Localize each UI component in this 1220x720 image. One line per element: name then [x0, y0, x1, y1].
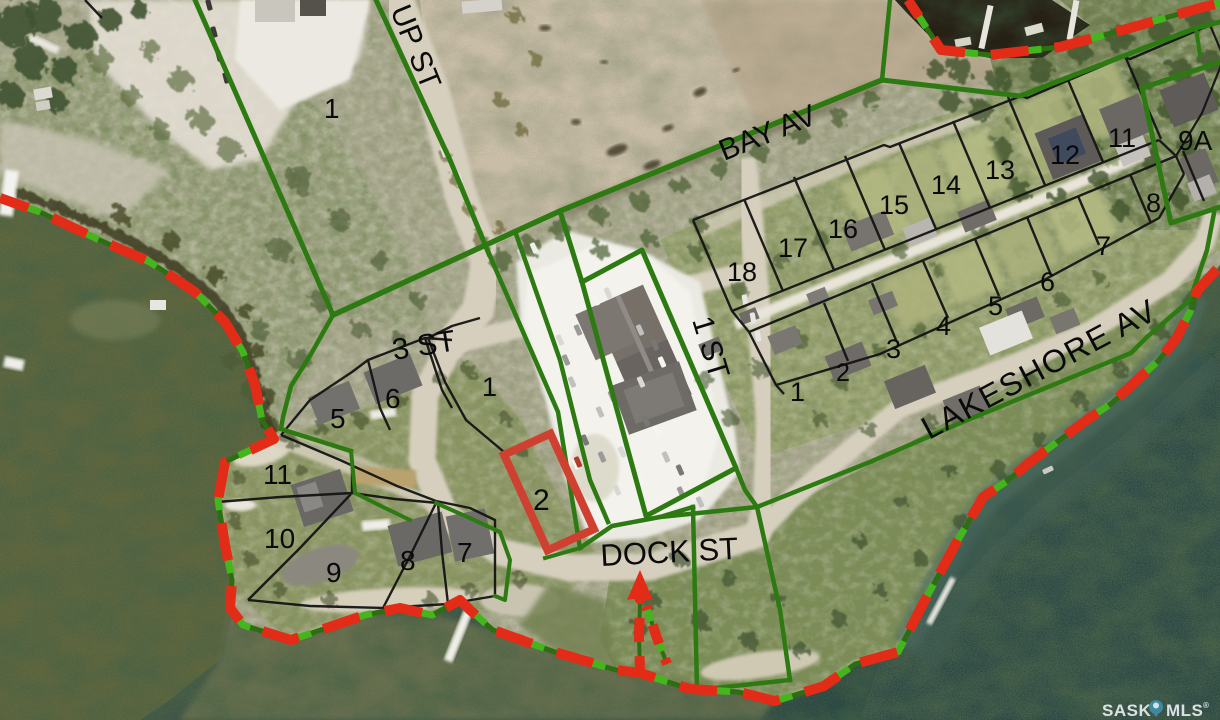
svg-text:12: 12 [1050, 140, 1080, 170]
svg-text:14: 14 [931, 170, 961, 200]
svg-text:8: 8 [1146, 188, 1161, 218]
svg-text:6: 6 [385, 383, 401, 414]
svg-text:11: 11 [263, 459, 292, 490]
svg-text:SASK: SASK [1102, 701, 1151, 720]
svg-text:17: 17 [778, 233, 808, 263]
svg-text:9: 9 [326, 557, 342, 588]
svg-text:7: 7 [1096, 231, 1111, 261]
svg-text:6: 6 [1040, 267, 1055, 297]
svg-text:9A: 9A [1178, 125, 1213, 156]
svg-text:18: 18 [727, 257, 757, 287]
svg-text:DOCK ST: DOCK ST [600, 531, 739, 573]
svg-text:10: 10 [264, 523, 295, 554]
svg-text:13: 13 [985, 155, 1015, 185]
svg-text:®: ® [1203, 701, 1209, 710]
svg-text:11: 11 [1108, 123, 1136, 153]
svg-text:2: 2 [533, 484, 550, 517]
svg-text:1: 1 [790, 377, 805, 407]
svg-text:8: 8 [400, 545, 416, 576]
svg-text:MLS: MLS [1166, 701, 1203, 720]
svg-text:1: 1 [324, 93, 340, 124]
svg-text:4: 4 [936, 311, 951, 341]
svg-text:3: 3 [886, 334, 901, 364]
svg-text:1: 1 [482, 372, 497, 402]
svg-text:7: 7 [457, 537, 473, 568]
svg-text:16: 16 [828, 214, 858, 244]
svg-text:15: 15 [879, 190, 909, 220]
svg-text:5: 5 [330, 403, 346, 434]
svg-text:5: 5 [988, 291, 1003, 321]
svg-text:2: 2 [836, 359, 850, 387]
